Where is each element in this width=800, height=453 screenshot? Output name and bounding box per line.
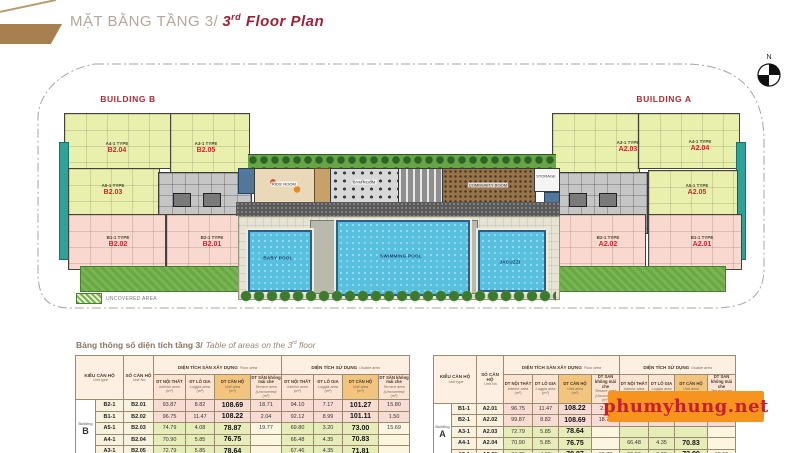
gym-room (330, 168, 400, 204)
storage-room (534, 168, 560, 192)
unit-type-cell: A4-1 (96, 434, 124, 446)
area-value-cell: 11.47 (533, 403, 559, 415)
watermark: phumyhung.net (608, 391, 764, 422)
area-value-cell: 15.69 (379, 423, 410, 435)
unit-label-A2.02: B2-1 TYPEA2.02 (597, 236, 620, 248)
area-value-cell: 19.77 (251, 423, 282, 435)
area-value-cell: 3.20 (649, 449, 675, 453)
header-unit-type: KIỂU CĂN HỘUnit type (434, 356, 477, 404)
jacuzzi-label: JACUZZI (499, 260, 520, 265)
area-value-cell: 5.85 (533, 426, 559, 438)
swimming-pool-label: SWIMMING POOL (380, 254, 422, 259)
area-value-cell: 15.69 (708, 449, 736, 453)
compass-icon: N (752, 50, 788, 90)
area-value-cell: 99.87 (504, 415, 533, 427)
header-terrace: DT SÂN không mái cheTerrace area (Uncove… (251, 375, 282, 400)
area-value-cell: 66.48 (620, 438, 649, 450)
unit-type-cell: A5-1 (96, 423, 124, 435)
area-value-cell: 101.27 (343, 400, 379, 412)
unit-type-cell: A4-1 (452, 438, 477, 450)
storage-label: STORAGE (535, 174, 557, 179)
locker-corridor (398, 168, 444, 204)
area-value-cell: 78.64 (559, 426, 592, 438)
area-value-cell: 76.75 (559, 438, 592, 450)
unit-no-cell: B2.05 (124, 446, 154, 453)
area-value-cell: 4.35 (314, 434, 343, 446)
area-value-cell (620, 426, 649, 438)
area-value-cell: 108.22 (559, 403, 592, 415)
lounge-block-left (310, 220, 336, 294)
building-b-garden (80, 266, 250, 292)
header-terrace: DT SÂN không mái cheTerrace area (Uncove… (379, 375, 410, 400)
building-cell: BuildingA (434, 403, 452, 453)
table-row: A5-1A2.0574.794.0878.8719.7769.803.2073.… (434, 449, 736, 453)
uncovered-area-swatch (76, 293, 102, 304)
unit-label-B2.02: B1-1 TYPEB2.02 (107, 236, 130, 248)
unit-type-cell: A5-1 (452, 449, 477, 453)
legend-label: UNCOVERED AREA (106, 296, 157, 302)
area-value-cell: 2.04 (251, 411, 282, 423)
community-room-label: COMMUNITY ROOM (468, 183, 508, 188)
unit-label-A2.04: A4-1 TYPEA2.04 (689, 140, 712, 152)
table-row: B1-1B2.0296.7511.47108.222.0492.128.9910… (76, 411, 410, 423)
area-value-cell: 4.35 (649, 438, 675, 450)
unit-type-cell: A3-1 (452, 426, 477, 438)
area-value-cell: 19.77 (592, 449, 620, 453)
header-floor-area-group: DIỆN TÍCH SÀN XÂY DỰNGFloor area (504, 356, 620, 375)
unit-no-cell: A2.05 (477, 449, 504, 453)
area-value-cell: 4.08 (533, 449, 559, 453)
header-unit-area: DT CĂN HỘUnit area(m²) (215, 375, 251, 400)
svg-text:N: N (766, 54, 771, 61)
table-row: A3-1A2.0372.795.8578.64 (434, 426, 736, 438)
unit-no-cell: B2.03 (124, 423, 154, 435)
area-value-cell: 70.83 (343, 434, 379, 446)
unit-no-cell: A2.02 (477, 415, 504, 427)
area-value-cell (592, 438, 620, 450)
building-cell: BuildingB (76, 400, 96, 453)
header-unit-area: DT CĂN HỘUnit area(m²) (343, 375, 379, 400)
header-interior: DT NỘI THẤTInterior area(m²) (504, 375, 533, 404)
unit-label-B2.01: B2-1 TYPEB2.01 (201, 236, 224, 248)
area-value-cell: 108.69 (215, 400, 251, 412)
area-value-cell (251, 446, 282, 453)
area-value-cell: 67.46 (282, 446, 314, 453)
area-value-cell: 78.87 (215, 423, 251, 435)
area-value-cell: 69.80 (282, 423, 314, 435)
area-value-cell: 101.11 (343, 411, 379, 423)
area-value-cell: 7.17 (314, 400, 343, 412)
area-value-cell: 78.87 (559, 449, 592, 453)
table-title: Bảng thông số diện tích tầng 3/Table of … (76, 340, 316, 350)
baby-pool (248, 230, 312, 292)
building-a-garden (556, 266, 726, 292)
area-value-cell: 70.90 (154, 434, 186, 446)
table-row: A5-1B2.0374.794.0878.8719.7769.803.2073.… (76, 423, 410, 435)
area-value-cell: 74.79 (504, 449, 533, 453)
unit-type-cell: B1-1 (452, 403, 477, 415)
unit-label-B2.05: A3-1 TYPEB2.05 (195, 142, 218, 154)
baby-pool-label: BABY POOL (263, 256, 292, 261)
area-value-cell: 11.47 (186, 411, 215, 423)
area-value-cell: 78.64 (215, 446, 251, 453)
area-value-cell: 96.75 (154, 411, 186, 423)
header-loggia: DT LÔ GIALoggia area(m²) (186, 375, 215, 400)
area-value-cell (649, 426, 675, 438)
area-value-cell: 3.20 (314, 423, 343, 435)
area-value-cell: 73.00 (675, 449, 708, 453)
area-value-cell: 18.71 (251, 400, 282, 412)
unit-label-B2.04: A4-1 TYPEB2.04 (106, 142, 129, 154)
table-row: BuildingBB2-1B2.0193.878.82108.6918.7194… (76, 400, 410, 412)
header-loggia: DT LÔ GIALoggia area(m²) (533, 375, 559, 404)
building-b-label: BUILDING B (100, 94, 156, 104)
table-row: A3-1B2.0572.795.8578.6467.464.3571.81 (76, 446, 410, 453)
area-value-cell: 108.22 (215, 411, 251, 423)
gym-room-label: GYM ROOM (352, 180, 377, 185)
area-value-cell: 93.87 (154, 400, 186, 412)
unit-no-cell: A2.01 (477, 403, 504, 415)
walkway (236, 202, 560, 216)
area-value-cell: 96.75 (504, 403, 533, 415)
area-value-cell: 5.85 (186, 446, 215, 453)
area-value-cell (675, 426, 708, 438)
area-value-cell: 8.82 (186, 400, 215, 412)
area-value-cell: 5.85 (186, 434, 215, 446)
unit-no-cell: B2.04 (124, 434, 154, 446)
area-value-cell: 74.79 (154, 423, 186, 435)
area-value-cell: 4.08 (186, 423, 215, 435)
floor-plan-page: MẶT BẰNG TẦNG 3/3rd Floor Plan N BUILDIN… (0, 0, 800, 453)
unit-no-cell: A2.04 (477, 438, 504, 450)
area-value-cell: 92.12 (282, 411, 314, 423)
header-interior: DT NỘI THẤTInterior area(m²) (154, 375, 186, 400)
area-value-cell: 1.50 (379, 411, 410, 423)
area-value-cell: 72.79 (154, 446, 186, 453)
area-value-cell: 108.69 (559, 415, 592, 427)
area-value-cell: 66.48 (282, 434, 314, 446)
unit-label-A2.03: A3-1 TYPEA2.03 (617, 141, 640, 153)
building-b-area-table: KIỂU CĂN HỘUnit type SỐ CĂN HỘUnit No. D… (75, 355, 410, 453)
area-value-cell: 69.80 (620, 449, 649, 453)
header-unit-no: SỐ CĂN HỘUnit No. (477, 356, 504, 404)
area-value-cell: 8.99 (314, 411, 343, 423)
area-value-cell: 8.82 (533, 415, 559, 427)
unit-label-A2.05: A5-1 TYPEA2.05 (686, 184, 709, 196)
area-value-cell: 72.79 (504, 426, 533, 438)
table-row: A4-1B2.0470.905.8576.7566.484.3570.83 (76, 434, 410, 446)
area-value-cell: 15.80 (379, 400, 410, 412)
unit-type-cell: B1-1 (96, 411, 124, 423)
area-value-cell: 73.00 (343, 423, 379, 435)
area-value-cell (251, 434, 282, 446)
kids-room-label: KIDS' ROOM (271, 182, 297, 187)
unit-no-cell: A2.03 (477, 426, 504, 438)
area-value-cell: 76.75 (215, 434, 251, 446)
area-value-cell: 4.35 (314, 446, 343, 453)
unit-label-A2.01: B1-1 TYPEA2.01 (691, 236, 714, 248)
unit-type-cell: B2-1 (96, 400, 124, 412)
area-value-cell (708, 438, 736, 450)
table-row: A4-1A2.0470.905.8576.7566.484.3570.83 (434, 438, 736, 450)
hedge-row (240, 290, 556, 303)
header-unit-no: SỐ CĂN HỘUnit No. (124, 356, 154, 400)
header-unit-type: KIỂU CĂN HỘUnit type (76, 356, 124, 400)
unit-no-cell: B2.02 (124, 411, 154, 423)
area-value-cell: 70.90 (504, 438, 533, 450)
area-value-cell (379, 434, 410, 446)
header-usable-area-group: DIỆN TÍCH SỬ DỤNGUsable area (282, 356, 410, 375)
header-floor-area-group: DIỆN TÍCH SÀN XÂY DỰNGFloor area (154, 356, 282, 375)
header-interior: DT NỘI THẤTInterior area(m²) (282, 375, 314, 400)
unit-no-cell: B2.01 (124, 400, 154, 412)
area-value-cell (708, 426, 736, 438)
header-unit-area: DT CĂN HỘUnit area(m²) (559, 375, 592, 404)
area-value-cell: 5.85 (533, 438, 559, 450)
area-value-cell (592, 426, 620, 438)
area-value-cell: 94.10 (282, 400, 314, 412)
area-value-cell: 70.83 (675, 438, 708, 450)
header-loggia: DT LÔ GIALoggia area(m²) (314, 375, 343, 400)
unit-type-cell: B2-1 (452, 415, 477, 427)
header-usable-area-group: DIỆN TÍCH SỬ DỤNGUsable area (620, 356, 736, 375)
unit-label-B2.03: A5-1 TYPEB2.03 (102, 184, 125, 196)
area-value-cell (379, 446, 410, 453)
building-a-label: BUILDING A (636, 94, 691, 104)
area-value-cell: 71.81 (343, 446, 379, 453)
unit-type-cell: A3-1 (96, 446, 124, 453)
legend: UNCOVERED AREA (76, 293, 157, 304)
